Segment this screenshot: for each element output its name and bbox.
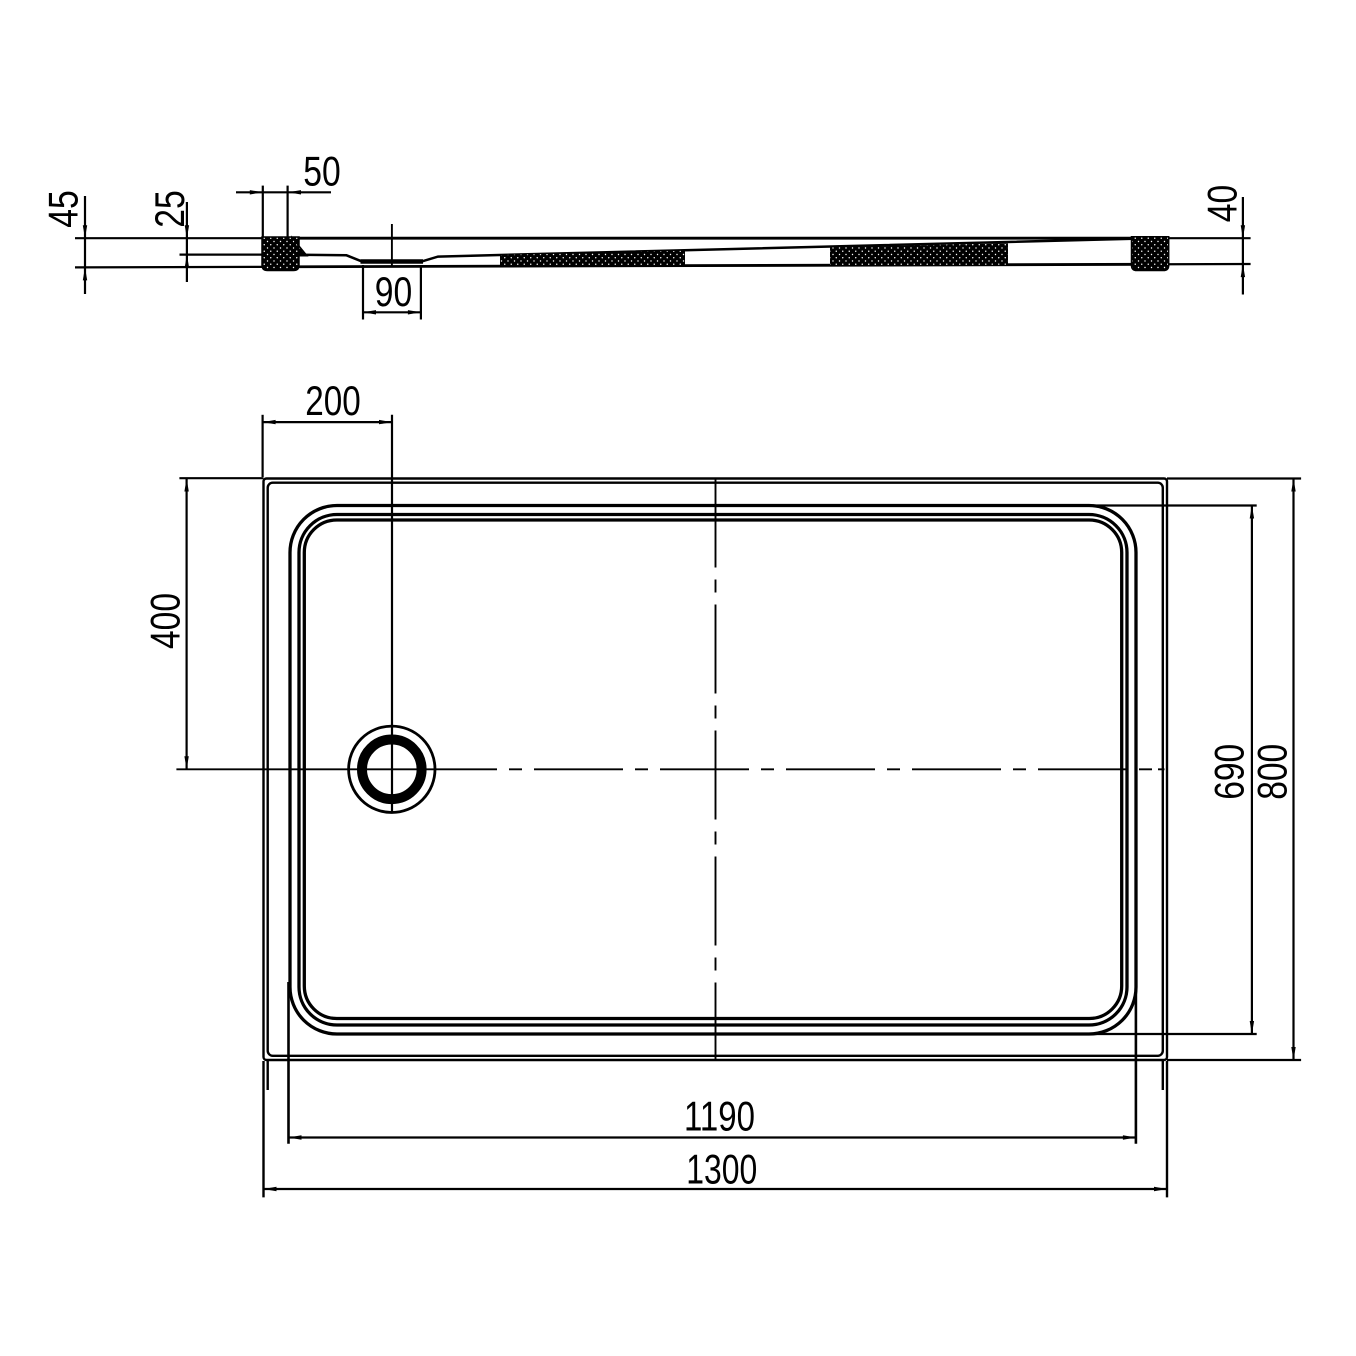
svg-text:400: 400	[142, 593, 189, 649]
svg-text:90: 90	[375, 268, 413, 315]
svg-text:1190: 1190	[684, 1093, 755, 1140]
svg-text:690: 690	[1206, 744, 1253, 800]
svg-text:200: 200	[305, 377, 361, 424]
svg-text:50: 50	[303, 148, 341, 195]
svg-text:25: 25	[146, 190, 193, 228]
svg-text:800: 800	[1249, 744, 1296, 800]
svg-text:45: 45	[40, 190, 87, 228]
svg-text:1300: 1300	[686, 1146, 757, 1193]
svg-text:40: 40	[1199, 185, 1246, 223]
